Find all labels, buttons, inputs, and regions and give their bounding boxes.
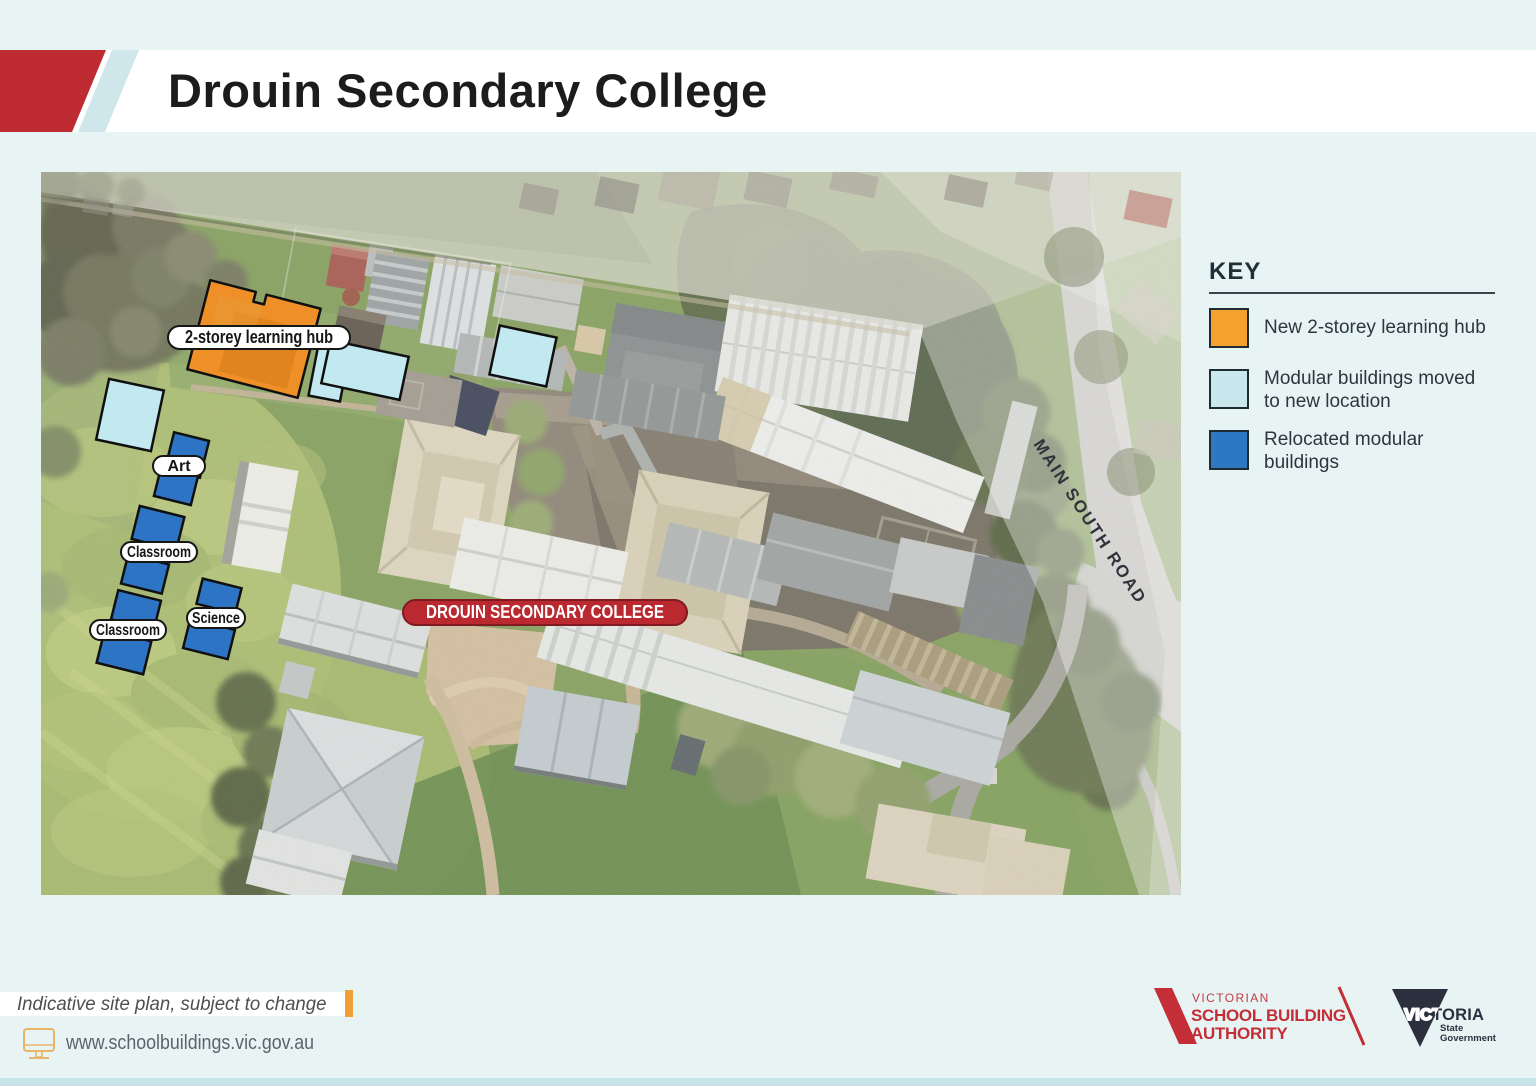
svg-text:VICTORIAN: VICTORIAN	[1192, 991, 1270, 1005]
svg-text:Classroom: Classroom	[96, 622, 160, 639]
svg-text:Government: Government	[1440, 1033, 1497, 1044]
svg-text:2-storey learning hub: 2-storey learning hub	[185, 327, 333, 347]
svg-text:Science: Science	[192, 610, 240, 627]
svg-text:SCHOOL BUILDING: SCHOOL BUILDING	[1191, 1006, 1346, 1025]
svg-text:DROUIN SECONDARY COLLEGE: DROUIN SECONDARY COLLEGE	[426, 602, 664, 622]
svg-text:AUTHORITY: AUTHORITY	[1191, 1024, 1288, 1043]
svg-text:Art: Art	[167, 458, 191, 475]
svg-text:Classroom: Classroom	[127, 544, 191, 561]
